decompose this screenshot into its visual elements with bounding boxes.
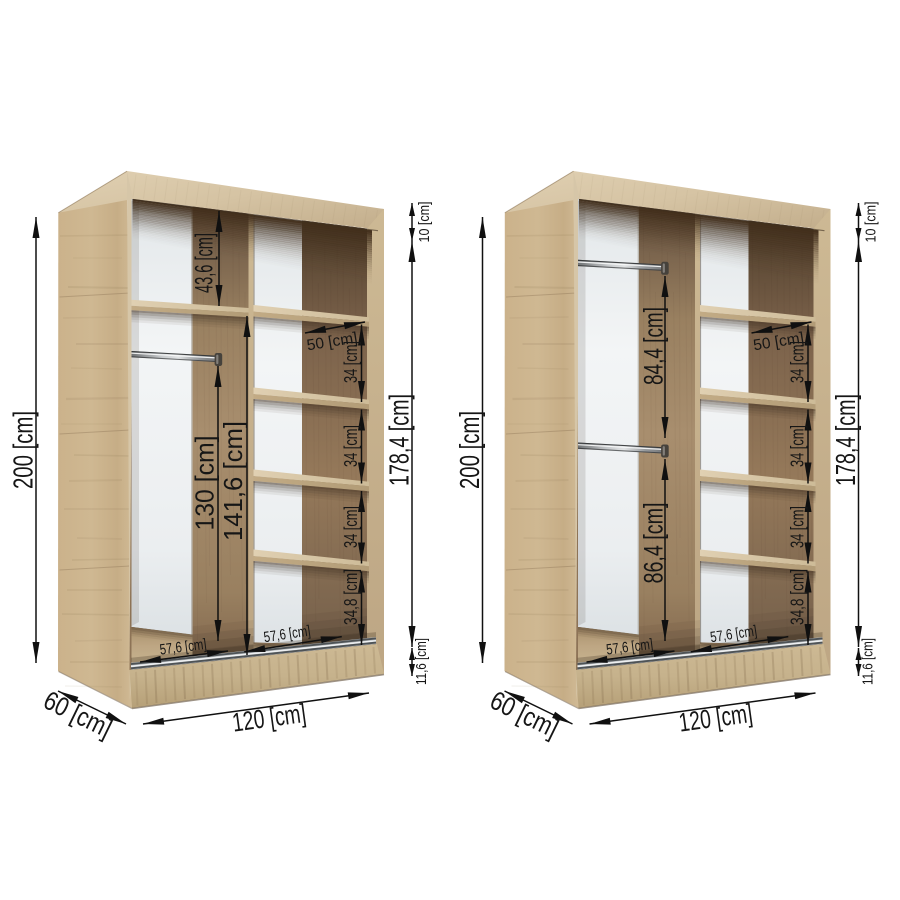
svg-text:10 [cm]: 10 [cm] (862, 202, 879, 243)
svg-text:34 [cm]: 34 [cm] (341, 341, 361, 383)
svg-text:178,4 [cm]: 178,4 [cm] (383, 394, 414, 486)
svg-text:200 [cm]: 200 [cm] (454, 411, 485, 489)
svg-text:34 [cm]: 34 [cm] (787, 506, 807, 548)
svg-text:34 [cm]: 34 [cm] (787, 425, 807, 467)
svg-text:200 [cm]: 200 [cm] (7, 411, 38, 489)
svg-text:120 [cm]: 120 [cm] (677, 698, 754, 738)
svg-text:11,6 [cm]: 11,6 [cm] (413, 638, 430, 685)
svg-text:141,6 [cm]: 141,6 [cm] (218, 421, 248, 541)
svg-text:34,8 [cm]: 34,8 [cm] (787, 569, 807, 625)
svg-text:34 [cm]: 34 [cm] (341, 506, 361, 548)
svg-text:34 [cm]: 34 [cm] (787, 341, 807, 383)
svg-text:43,6 [cm]: 43,6 [cm] (190, 233, 218, 293)
svg-text:34 [cm]: 34 [cm] (341, 425, 361, 467)
svg-text:130 [cm]: 130 [cm] (190, 436, 220, 531)
svg-text:120 [cm]: 120 [cm] (230, 698, 307, 738)
svg-text:178,4 [cm]: 178,4 [cm] (830, 394, 861, 486)
svg-text:10 [cm]: 10 [cm] (416, 202, 433, 243)
svg-text:11,6 [cm]: 11,6 [cm] (859, 638, 876, 685)
svg-text:34,8 [cm]: 34,8 [cm] (341, 569, 361, 625)
svg-text:86,4 [cm]: 86,4 [cm] (638, 503, 668, 584)
svg-text:84,4 [cm]: 84,4 [cm] (638, 307, 668, 385)
